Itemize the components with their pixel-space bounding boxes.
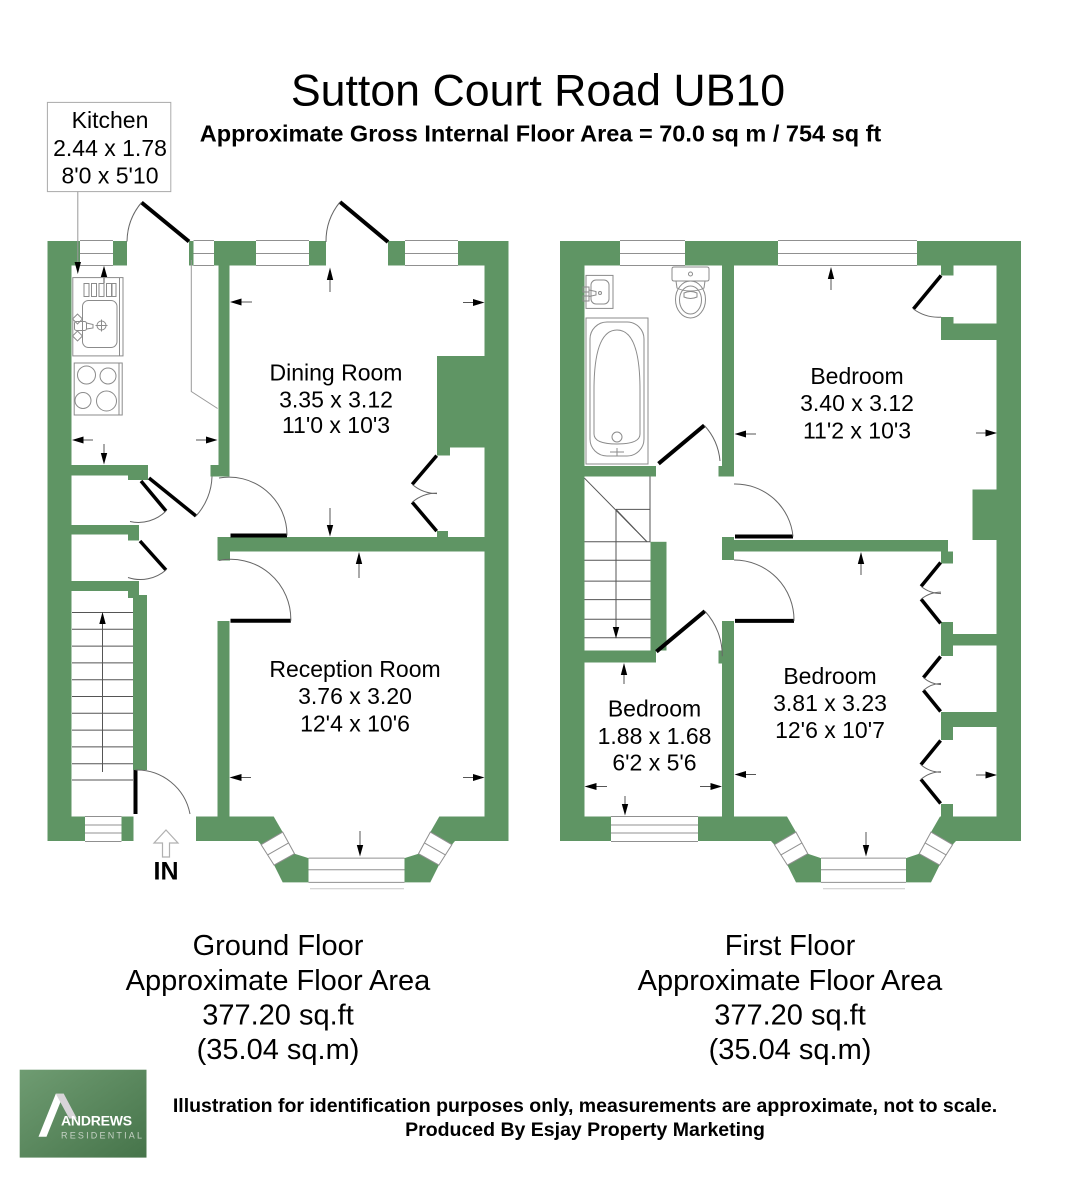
svg-text:Bedroom: Bedroom [608,696,701,722]
svg-text:Bedroom: Bedroom [810,363,903,389]
svg-text:12'4 x 10'6: 12'4 x 10'6 [300,710,410,736]
svg-text:Illustration for identificatio: Illustration for identification purposes… [173,1095,997,1117]
svg-text:1.88 x 1.68: 1.88 x 1.68 [598,723,712,749]
svg-text:3.35 x 3.12: 3.35 x 3.12 [279,386,393,412]
svg-text:8'0 x 5'10: 8'0 x 5'10 [61,163,158,189]
svg-text:377.20 sq.ft: 377.20 sq.ft [714,1000,866,1032]
svg-text:ANDREWS: ANDREWS [61,1112,132,1128]
svg-text:Approximate Floor Area: Approximate Floor Area [638,965,944,997]
svg-text:Approximate Gross Internal Flo: Approximate Gross Internal Floor Area = … [200,121,882,147]
svg-text:Kitchen: Kitchen [72,107,149,133]
svg-text:Approximate Floor Area: Approximate Floor Area [126,965,432,997]
svg-text:First Floor: First Floor [725,930,856,962]
svg-text:Bedroom: Bedroom [783,663,876,689]
svg-text:(35.04 sq.m): (35.04 sq.m) [197,1034,360,1066]
svg-text:3.40 x 3.12: 3.40 x 3.12 [800,390,914,416]
svg-text:(35.04 sq.m): (35.04 sq.m) [709,1034,872,1066]
svg-text:Ground Floor: Ground Floor [193,930,364,962]
svg-text:3.81 x 3.23: 3.81 x 3.23 [773,690,887,716]
svg-text:11'0 x 10'3: 11'0 x 10'3 [282,412,390,438]
svg-text:3.76 x 3.20: 3.76 x 3.20 [298,683,412,709]
svg-text:11'2 x 10'3: 11'2 x 10'3 [803,418,911,444]
svg-text:IN: IN [154,858,179,886]
svg-text:Sutton Court Road UB10: Sutton Court Road UB10 [291,67,785,116]
svg-text:377.20 sq.ft: 377.20 sq.ft [202,1000,354,1032]
svg-text:6'2 x 5'6: 6'2 x 5'6 [612,750,696,776]
svg-text:12'6 x 10'7: 12'6 x 10'7 [775,717,885,743]
svg-text:RESIDENTIAL: RESIDENTIAL [61,1130,144,1140]
svg-text:Reception Room: Reception Room [269,656,440,682]
svg-text:Dining Room: Dining Room [270,359,403,385]
svg-text:Produced By Esjay Property Mar: Produced By Esjay Property Marketing [405,1119,765,1141]
svg-text:2.44 x 1.78: 2.44 x 1.78 [53,135,167,161]
